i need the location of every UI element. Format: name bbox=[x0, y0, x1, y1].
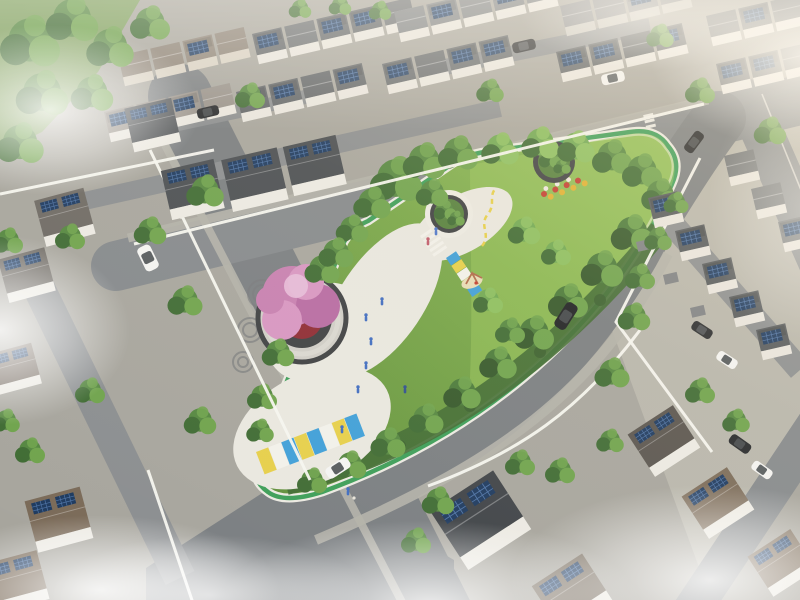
aerial-rendering: Aerial rendering of a solar-roofed resid… bbox=[0, 0, 800, 600]
top-haze bbox=[0, 0, 800, 130]
scene-canvas: Aerial rendering of a solar-roofed resid… bbox=[0, 0, 800, 600]
